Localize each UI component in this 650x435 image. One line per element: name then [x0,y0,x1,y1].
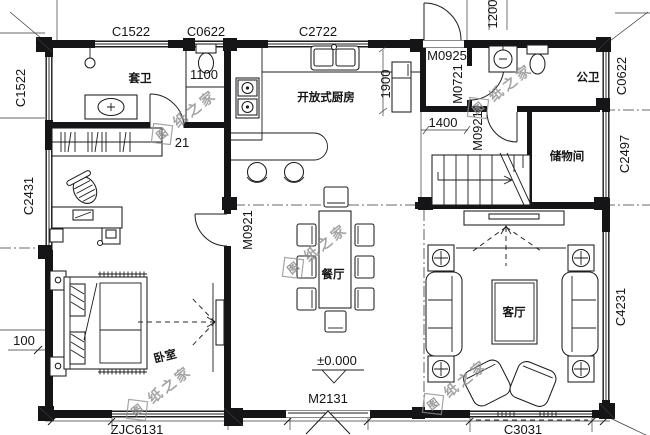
room-label-kitchen: 开放式厨房 [297,90,355,104]
window-label-c1522-left: C1522 [13,69,28,107]
window-label-zjc6131: ZJC6131 [111,422,164,435]
door-label-m0925: M0925 [427,48,467,63]
door-bedroom-m0921 [195,214,227,246]
door-label-m2131: M2131 [308,391,348,406]
window-label-c2431-left: C2431 [21,177,36,215]
room-label-public-bath: 公卫 [577,71,600,84]
window-label-c2722-top: C2722 [299,24,337,39]
window-zjc6131-bottom [112,411,228,418]
dim-100: 100 [13,333,35,348]
tv-cabinet-living [464,211,564,266]
sofa-left [426,272,462,356]
door-rear-m0925 [423,3,464,48]
window-c1522-left [46,57,53,120]
room-label-dining: 餐厅 [321,267,345,281]
wardrobe [52,128,162,156]
desk [50,207,122,246]
sofa-right [562,272,598,356]
window-label-c2497-right: C2497 [617,135,632,173]
door-label-m0921-bedroom: M0921 [240,210,255,250]
vanity-sink [85,95,137,119]
window-label-c0622-top: C0622 [187,24,225,39]
dim-1200: 1200 [485,0,500,28]
dim-1100: 1100 [190,67,218,82]
armchair [507,359,558,409]
floor-plan-canvas: C1522 C0622 C2722 C1522 C2431 C0622 C249… [0,0,650,435]
window-c1522-top [95,41,168,48]
window-c0622-right [603,52,610,98]
stairs [432,153,531,205]
watermark-text: 纸之家 [145,362,195,406]
window-label-c3031: C3031 [504,422,542,435]
dim-21: 21 [175,135,189,150]
office-chair [66,170,103,209]
tv-bedroom [138,283,224,372]
shower-icon [85,46,95,68]
bath-sink [489,46,517,72]
window-label-c0622-right: C0622 [614,57,629,95]
fridge [392,62,411,112]
corner-table [568,245,594,271]
corner-table [428,356,454,382]
bed [64,272,147,375]
room-label-ensuite: 套卫 [129,71,152,85]
elevation-label: ±0.000 [317,353,357,368]
floor-plan: C1522 C0622 C2722 C1522 C2431 C0622 C249… [0,0,650,435]
room-label-living: 客厅 [502,305,526,319]
door-hall-m0921 [487,112,517,142]
window-c2497-right [603,112,610,198]
door-label-m0721: M0721 [450,64,465,104]
bar-counter [231,133,328,160]
kitchen-sink [311,45,359,71]
room-label-storage: 储物间 [550,149,585,163]
window-c4231-right [603,232,610,400]
window-label-c1522-top: C1522 [112,24,150,39]
dim-1400: 1400 [429,115,458,130]
bar-stools [247,163,304,183]
corner-table [428,245,454,271]
elevation-mark [312,370,364,383]
window-label-c4231-right: C4231 [613,288,628,326]
dim-1900: 1900 [378,70,393,99]
corner-table [568,356,594,382]
window-c3031-bottom [470,411,592,421]
room-label-bedroom: 卧室 [152,346,178,365]
stove [236,78,259,118]
door-entrance-m2131 [286,411,370,435]
